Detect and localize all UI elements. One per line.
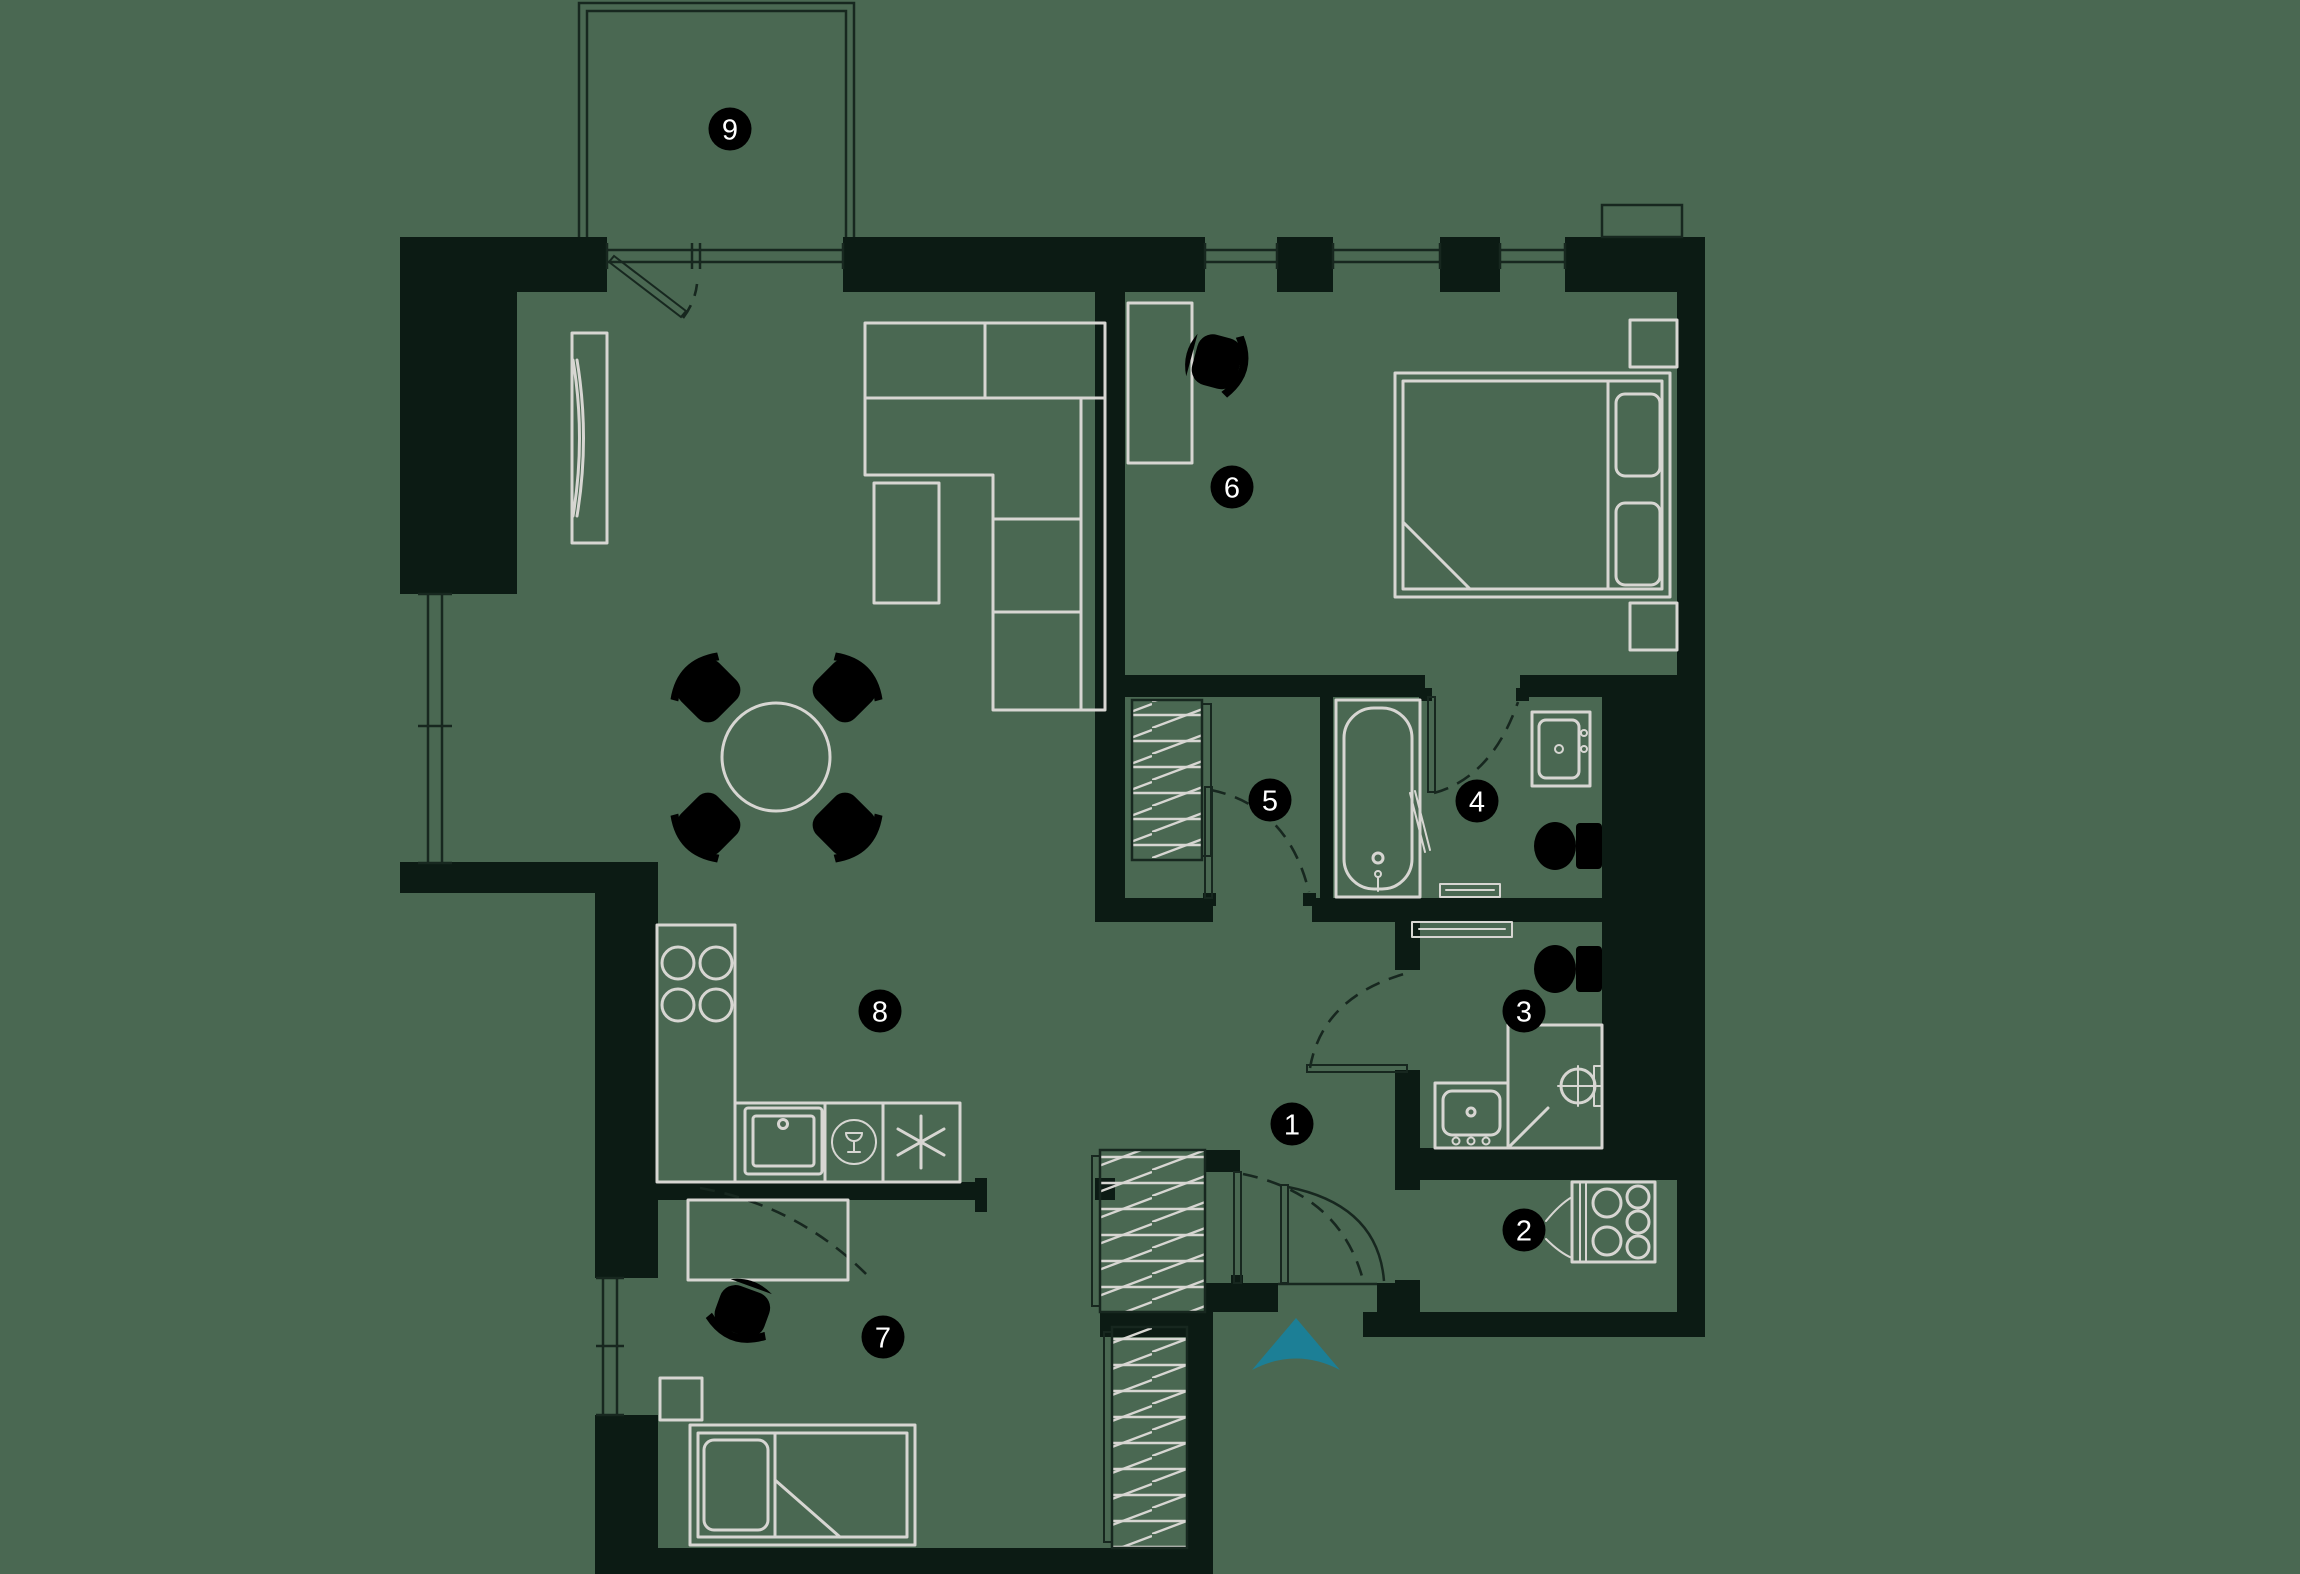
svg-text:2: 2 [1516,1216,1532,1248]
svg-text:8: 8 [872,997,888,1029]
toilet [1534,822,1602,870]
hall-closet-lower [1112,1327,1187,1548]
floor-plan-canvas: 123456789 [0,0,2300,1574]
svg-text:4: 4 [1469,787,1485,819]
svg-text:5: 5 [1262,786,1278,818]
room-badge-4: 4 [1456,780,1499,823]
room-badge-7: 7 [862,1316,905,1359]
room-badge-8: 8 [859,990,902,1033]
room-badge-9: 9 [709,108,752,151]
room-badge-2: 2 [1503,1209,1546,1252]
svg-text:6: 6 [1224,473,1240,505]
svg-text:3: 3 [1516,997,1532,1029]
bidet [1534,945,1602,993]
room-badge-3: 3 [1503,990,1546,1033]
room-badge-1: 1 [1271,1103,1314,1146]
svg-text:9: 9 [722,115,738,147]
floor-plan: 123456789 [0,0,2300,1574]
room-badge-5: 5 [1249,779,1292,822]
wardrobe-room5 [1132,700,1202,860]
svg-text:7: 7 [875,1323,891,1355]
room-badge-6: 6 [1211,466,1254,509]
svg-text:1: 1 [1284,1110,1300,1142]
hall-closet-upper [1100,1150,1205,1312]
